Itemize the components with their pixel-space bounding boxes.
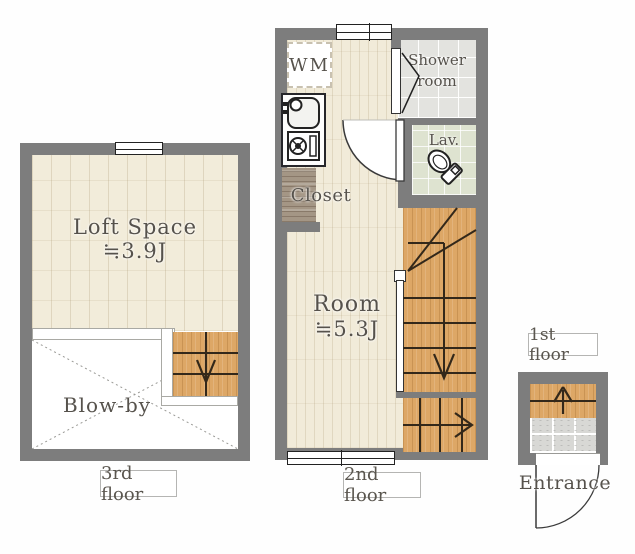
floor1-caption: 1st floor [528,333,598,356]
floor3-window-icon [115,142,163,155]
loft-size: ≒3.9J [32,239,238,263]
floor2-bottom-window-icon [287,451,395,465]
loft-edge-bar [32,328,175,340]
floor3-interior: Loft Space ≒3.9J Blow-by [32,155,238,449]
window-mid-line [116,149,162,150]
floor1-steps [530,384,596,418]
window-tick [341,450,342,466]
floor2-top-window-icon [336,24,392,40]
kitchen-unit [281,93,326,167]
shower-door-leaf [391,48,401,114]
shower-label-line1: Shower [398,50,476,71]
loft-space-label: Loft Space ≒3.9J [32,215,238,263]
closet-wall-stub [275,222,320,232]
floor3-stairs [173,332,238,396]
closet-label: Closet [281,185,361,206]
entrance-label: Entrance [515,472,615,494]
floor2-plan: WM Closet [275,28,488,460]
floor-plan-page: Loft Space ≒3.9J Blow-by 3rd floor WM [0,0,635,554]
floor3-caption: 3rd floor [100,470,177,497]
floor1-plan [518,372,608,465]
toilet-icon [421,143,469,191]
room-size: ≒5.3J [287,317,407,341]
stairs-down-arrow-icon [173,332,238,396]
loft-title: Loft Space [32,215,238,239]
entrance-door-opening [536,453,600,465]
shower-room-label: Shower room [398,50,476,92]
room-title: Room [287,292,407,317]
floor2-caption: 2nd floor [343,472,421,498]
window-tick [369,23,370,41]
shower-label-line2: room [398,71,476,92]
entrance-stone-floor [530,418,596,453]
stairs-up-arrow-icon [530,384,596,418]
blow-by-label: Blow-by [32,393,182,417]
stair-side-bar [161,328,173,403]
floor3-plan: Loft Space ≒3.9J Blow-by [20,143,250,461]
gas-stove-icon [288,132,319,160]
wm-label: WM [289,55,330,76]
washing-machine-area: WM [287,42,332,88]
room-label: Room ≒5.3J [287,292,407,341]
window-mid-line [337,32,391,33]
floor2-stairs-upper [403,208,476,392]
floor2-stairs-lower [403,398,476,452]
kitchen-sink-icon [283,95,324,165]
